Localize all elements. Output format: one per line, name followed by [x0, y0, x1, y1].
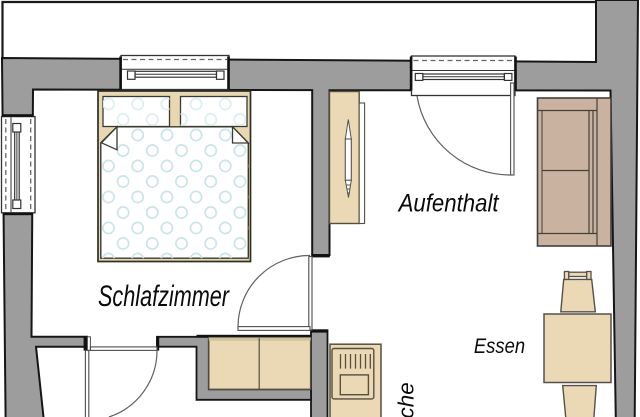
svg-text:Essen: Essen [474, 335, 525, 358]
svg-text:Küche: Küche [394, 382, 419, 417]
svg-text:Schlafzimmer: Schlafzimmer [98, 280, 230, 313]
svg-text:Aufenthalt: Aufenthalt [397, 190, 500, 218]
